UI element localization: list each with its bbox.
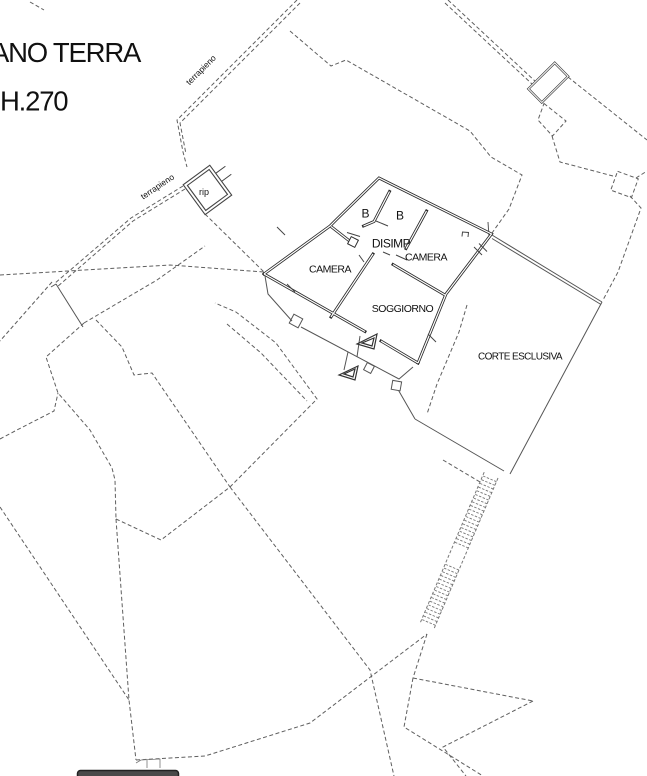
svg-text:B: B bbox=[361, 207, 369, 221]
svg-text:B: B bbox=[396, 209, 404, 223]
svg-text:CAMERA: CAMERA bbox=[309, 264, 351, 276]
svg-text:CORTE ESCLUSIVA: CORTE ESCLUSIVA bbox=[478, 352, 563, 363]
svg-text:DISIMP: DISIMP bbox=[372, 237, 411, 251]
svg-text:H.270: H.270 bbox=[0, 86, 68, 117]
svg-text:SOGGIORNO: SOGGIORNO bbox=[372, 303, 434, 315]
svg-text:rip: rip bbox=[199, 187, 209, 197]
svg-text:ANO TERRA: ANO TERRA bbox=[0, 37, 142, 68]
svg-text:CAMERA: CAMERA bbox=[405, 252, 447, 264]
